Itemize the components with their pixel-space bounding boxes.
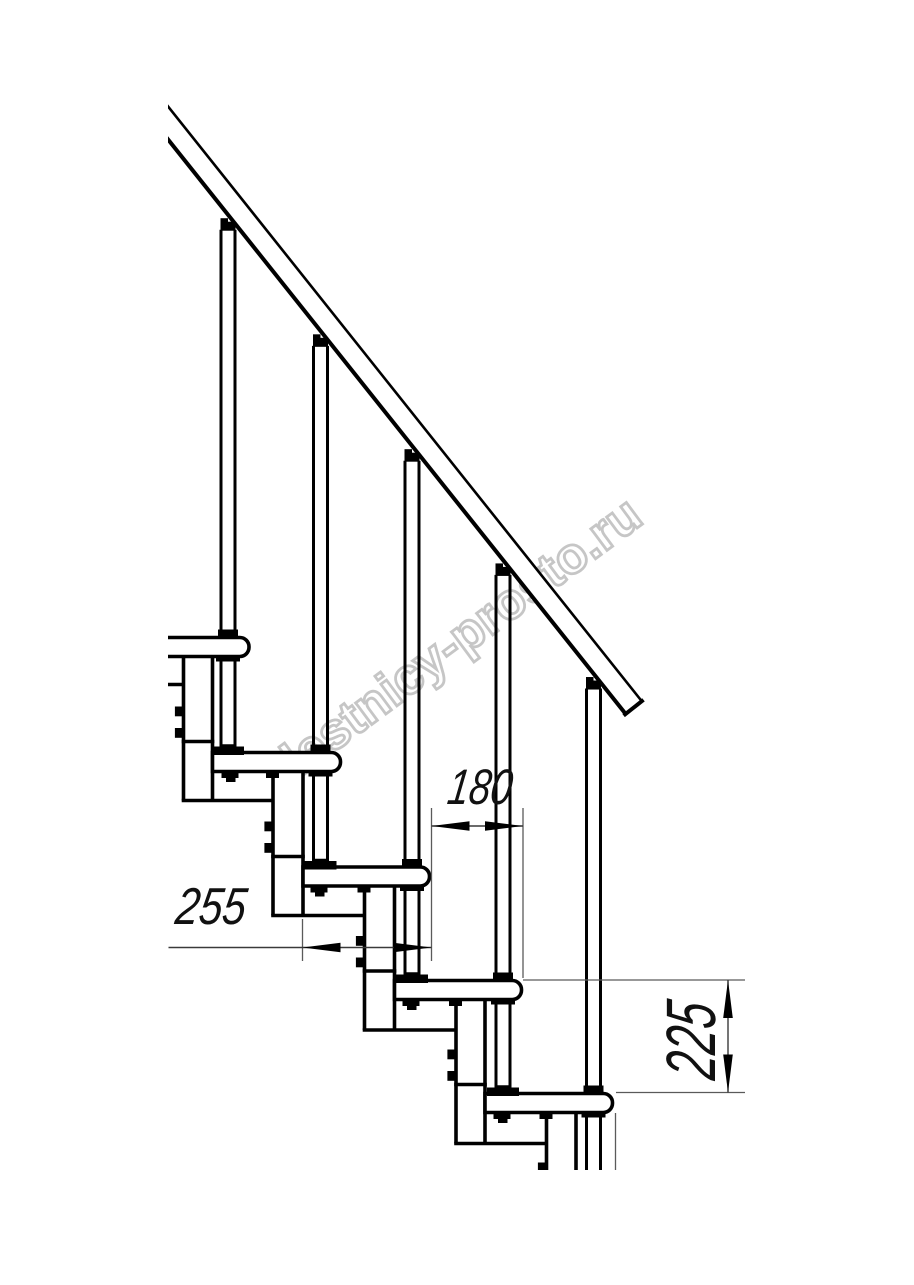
svg-text:225: 225 xyxy=(651,995,730,1083)
svg-text:255: 255 xyxy=(172,878,252,936)
svg-text:180: 180 xyxy=(444,759,516,815)
